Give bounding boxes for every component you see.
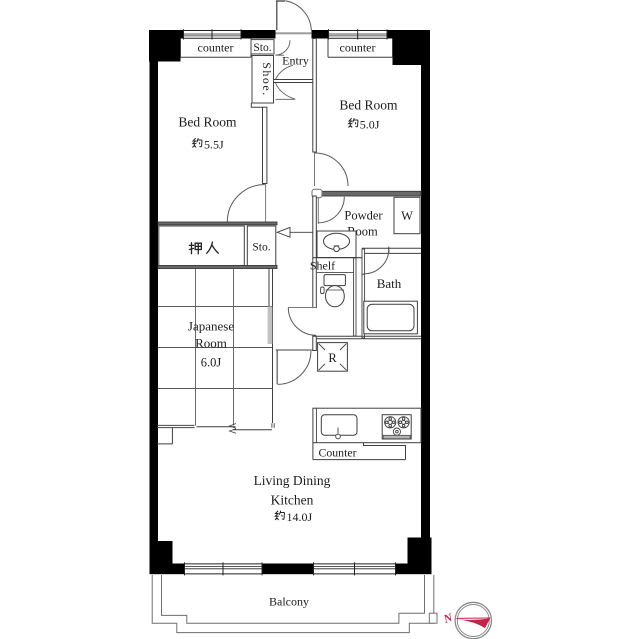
svg-text:Counter: Counter bbox=[319, 446, 357, 460]
svg-text:Sto.: Sto. bbox=[252, 242, 270, 254]
svg-text:5.0J: 5.0J bbox=[360, 118, 380, 132]
svg-text:Bed Room: Bed Room bbox=[178, 115, 237, 130]
svg-text:Shelf: Shelf bbox=[310, 259, 335, 273]
svg-text:5.5J: 5.5J bbox=[204, 138, 224, 152]
svg-text:Room: Room bbox=[195, 336, 227, 351]
svg-text:Living Dining: Living Dining bbox=[254, 473, 331, 488]
svg-text:Bed Room: Bed Room bbox=[339, 98, 398, 113]
svg-text:W: W bbox=[401, 209, 413, 223]
svg-text:Sto.: Sto. bbox=[253, 42, 271, 54]
svg-text:Japanese: Japanese bbox=[188, 319, 234, 334]
svg-text:Balcony: Balcony bbox=[269, 595, 309, 609]
svg-text:Shoe.: Shoe. bbox=[260, 62, 274, 97]
svg-text:Powder: Powder bbox=[344, 209, 383, 223]
svg-text:counter: counter bbox=[198, 41, 234, 55]
svg-text:counter: counter bbox=[340, 41, 376, 55]
svg-text:14.0J: 14.0J bbox=[287, 510, 313, 524]
svg-text:Bath: Bath bbox=[377, 276, 402, 291]
svg-text:R: R bbox=[328, 351, 337, 365]
svg-text:Entry: Entry bbox=[282, 54, 309, 68]
svg-text:6.0J: 6.0J bbox=[201, 356, 222, 370]
svg-text:Kitchen: Kitchen bbox=[271, 493, 314, 508]
